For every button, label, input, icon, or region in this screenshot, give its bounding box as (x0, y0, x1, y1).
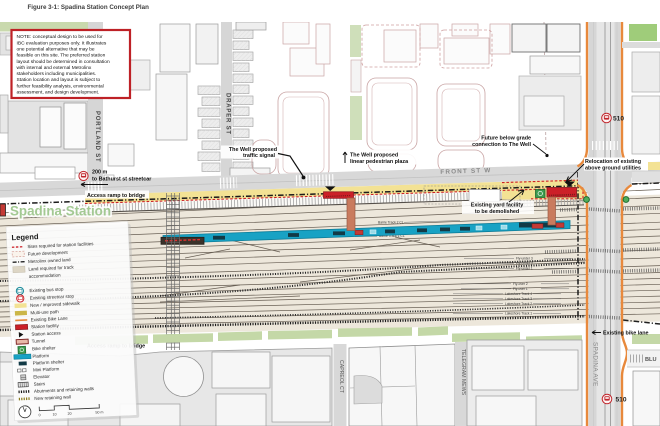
svg-text:one potential alternative that: one potential alternative that may be (17, 47, 95, 53)
svg-text:Spadina Station: Spadina Station (10, 204, 111, 219)
svg-text:Lakeshore Track 4: Lakeshore Track 4 (505, 292, 532, 296)
svg-text:further feasibility analysis,: further feasibility analysis, environmen… (17, 83, 104, 89)
svg-text:Fly-under 3: Fly-under 3 (516, 257, 533, 261)
svg-text:Lakeshore Track 3: Lakeshore Track 3 (505, 297, 532, 301)
svg-text:Elevator: Elevator (33, 374, 50, 380)
svg-text:linear pedestrian plaza: linear pedestrian plaza (350, 159, 409, 165)
svg-text:10: 10 (52, 412, 56, 416)
svg-text:Lakeshore Track 1: Lakeshore Track 1 (505, 312, 532, 316)
svg-text:Fly-over 2: Fly-over 2 (513, 282, 528, 286)
svg-text:CAPREOL CT: CAPREOL CT (338, 360, 344, 394)
svg-text:to Bathurst st streetcar: to Bathurst st streetcar (92, 177, 152, 183)
svg-text:BLU: BLU (645, 357, 657, 363)
svg-text:NOTE: conceptual design to be: NOTE: conceptual design to be used for (17, 34, 104, 40)
svg-text:assessment, and design develop: assessment, and design development. (17, 90, 100, 96)
svg-text:stakeholders including municip: stakeholders including municipalities. (17, 71, 97, 77)
svg-text:Station location and layout is: Station location and layout is subject t… (17, 77, 101, 83)
svg-text:with internal and external Met: with internal and external Metrolinx (17, 65, 92, 71)
svg-text:TELEGRAM MEWS: TELEGRAM MEWS (460, 349, 466, 396)
svg-text:The Well proposed: The Well proposed (350, 153, 398, 159)
svg-text:Existing bike lane: Existing bike lane (603, 331, 649, 337)
svg-text:layout should be determined in: layout should be determined in consultat… (17, 59, 110, 65)
svg-text:Stairs: Stairs (34, 381, 46, 387)
svg-text:Barrie Track 2 CL: Barrie Track 2 CL (378, 221, 404, 225)
svg-text:510: 510 (616, 397, 627, 404)
svg-text:Relocation of existing: Relocation of existing (585, 159, 641, 165)
svg-text:Future below grade: Future below grade (481, 136, 531, 142)
svg-text:Lakeshore Track 2: Lakeshore Track 2 (505, 302, 532, 306)
svg-text:feasible on this site. The pre: feasible on this site. The preferred sta… (17, 53, 106, 59)
svg-text:SPADINA AVE: SPADINA AVE (592, 342, 599, 387)
svg-text:to be demolished: to be demolished (475, 209, 519, 215)
svg-text:Fly-over 1: Fly-over 1 (513, 287, 528, 291)
svg-text:20: 20 (67, 412, 71, 416)
svg-text:IBC evaluation purposes only.: IBC evaluation purposes only. It illustr… (17, 40, 107, 46)
svg-text:Legend: Legend (11, 232, 39, 242)
svg-text:connection to The Well: connection to The Well (472, 142, 531, 148)
svg-text:above ground utilities: above ground utilities (585, 166, 641, 172)
svg-text:510: 510 (613, 116, 624, 123)
svg-text:Fly-under 2: Fly-under 2 (516, 262, 533, 266)
svg-text:PORTLAND ST: PORTLAND ST (94, 111, 100, 162)
svg-text:Tunnel: Tunnel (32, 338, 46, 344)
svg-text:Access ramp to bridge: Access ramp to bridge (87, 193, 145, 199)
svg-text:Figure 3-1: Spadina Station Co: Figure 3-1: Spadina Station Concept Plan (28, 4, 150, 11)
svg-text:traffic signal: traffic signal (243, 153, 276, 159)
svg-text:Existing yard facility: Existing yard facility (471, 203, 523, 209)
svg-text:200 m: 200 m (92, 170, 107, 176)
svg-text:Platform: Platform (32, 353, 49, 359)
svg-text:0: 0 (38, 413, 40, 417)
svg-text:Fly-under 1: Fly-under 1 (516, 267, 533, 271)
svg-text:50 m: 50 m (95, 410, 103, 414)
svg-text:DRAPER ST: DRAPER ST (225, 93, 231, 135)
